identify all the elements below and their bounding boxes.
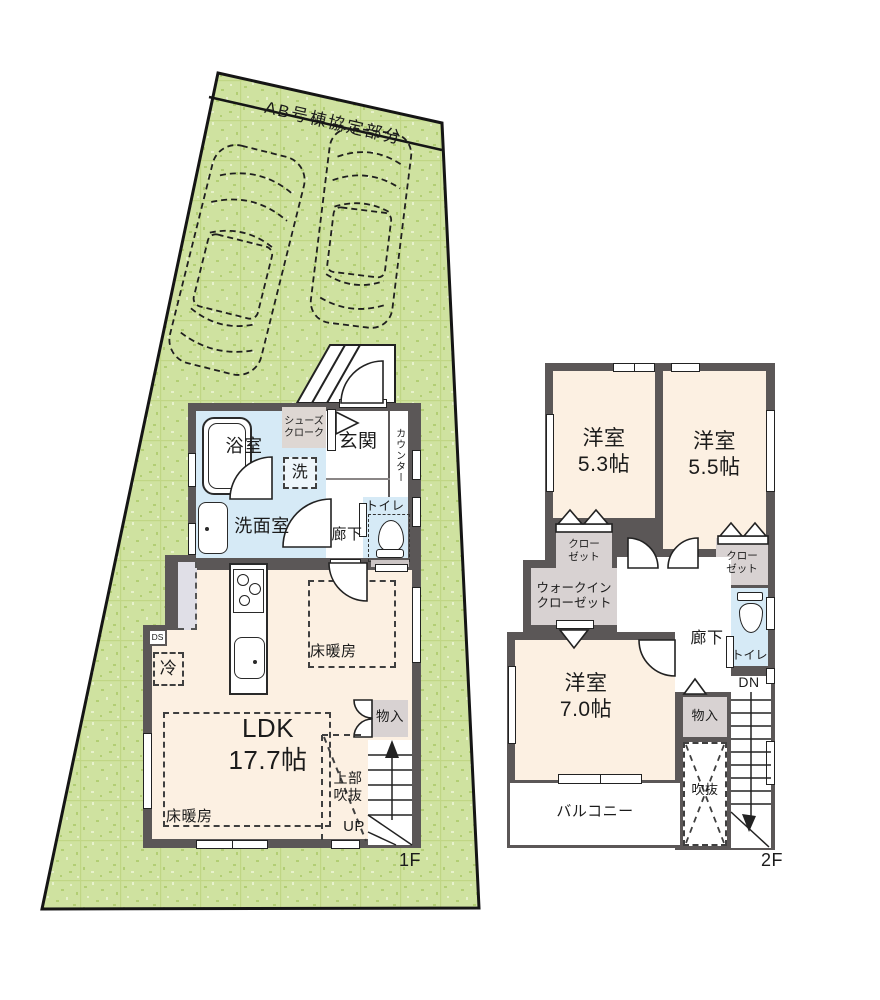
counter-label: カウンター: [390, 414, 407, 496]
f2-hallway-lower: [675, 557, 731, 692]
window: [196, 840, 268, 849]
down-label: DN: [729, 675, 769, 691]
floor-heating-a-label: 床暖房: [310, 643, 382, 661]
void-above-label: 上部 吹抜: [324, 770, 372, 804]
ldk-door-leaf: [330, 559, 361, 567]
f2-void-label: 吹抜: [683, 782, 727, 798]
f1-toilet-bowl: [378, 520, 404, 552]
up-label: UP: [334, 818, 374, 836]
f2-toilet-label: トイレ: [731, 648, 768, 663]
f1-storage-label: 物入: [371, 709, 409, 725]
window: [766, 410, 775, 492]
window: [613, 363, 655, 372]
sink-drain: [253, 660, 257, 664]
walk-in-closet-label: ウォークイン クローゼット: [531, 580, 617, 612]
window: [188, 523, 196, 555]
f1-stairs-area: [368, 740, 412, 845]
f2-hallway-label: 廊下: [683, 630, 731, 648]
bedroom3-label: 洋室 7.0帖: [515, 668, 657, 726]
shoes-cloak-label: シューズ クローク: [276, 414, 332, 442]
window: [766, 597, 775, 630]
bath-label: 浴室: [214, 436, 274, 458]
f2-stairs-area: [731, 676, 771, 848]
balcony-slider-window: [558, 774, 642, 784]
floorplan-canvas: AB号棟協定部分: [0, 0, 880, 1000]
window: [671, 363, 700, 372]
window: [766, 741, 775, 785]
stove: [233, 569, 264, 613]
wic-door-bar: [556, 620, 594, 629]
f2-toilet-tank: [737, 592, 763, 601]
f1-floor-label: 1F: [390, 850, 430, 872]
window: [143, 733, 152, 809]
floor-heating-b-label: 床暖房: [166, 808, 238, 826]
closet1-label: クロー ゼット: [556, 537, 612, 565]
f1-toilet-seat: [376, 549, 404, 558]
window: [412, 587, 421, 663]
f2-hallway-upper: [617, 557, 675, 632]
window: [331, 840, 360, 849]
f1-genkan-step-line: [326, 478, 390, 480]
burner: [239, 595, 250, 606]
burner: [249, 583, 261, 595]
window: [188, 453, 196, 487]
f1-toilet-label: トイレ: [362, 499, 408, 514]
washroom-label: 洗面室: [210, 516, 314, 538]
ldk-label: LDK 17.7帖: [198, 713, 338, 775]
window: [375, 564, 408, 572]
kitchen-sink: [234, 637, 265, 679]
window: [412, 497, 421, 527]
closet2-label: クロー ゼット: [716, 549, 768, 577]
entrance-label: 玄関: [328, 430, 388, 454]
entrance-door-leaf: [339, 399, 387, 408]
washbasin-drain: [205, 527, 209, 531]
bedroom1-label: 洋室 5.3帖: [553, 423, 655, 481]
f2-floor-label: 2F: [752, 850, 792, 872]
fridge-label: 冷: [153, 654, 184, 684]
f1-hallway-label: 廊下: [321, 526, 373, 544]
f2-storage-label: 物入: [684, 708, 726, 724]
balcony-label: バルコニー: [527, 803, 663, 821]
duct-space-label: DS: [148, 630, 167, 645]
f1-niche: [178, 562, 197, 630]
bedroom2-label: 洋室 5.5帖: [663, 426, 766, 484]
window: [412, 450, 421, 480]
burner: [237, 574, 249, 586]
laundry-label: 洗: [283, 458, 317, 488]
